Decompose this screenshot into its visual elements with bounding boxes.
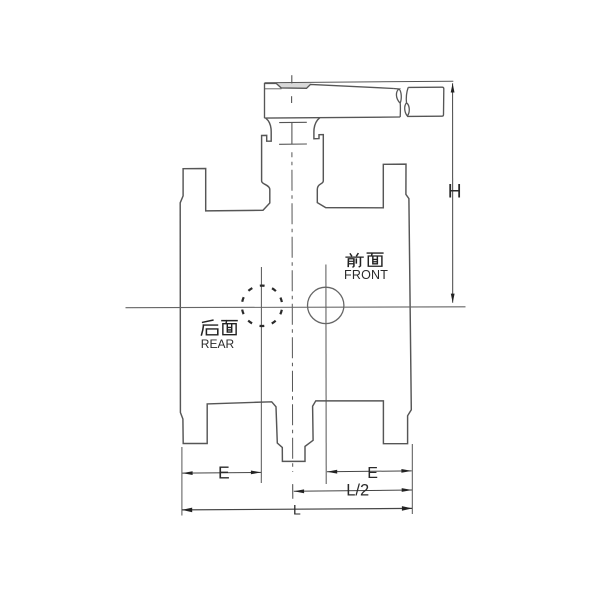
svg-text:L: L — [293, 502, 301, 518]
svg-text:E: E — [218, 462, 230, 482]
svg-text:E: E — [367, 465, 378, 482]
svg-text:REAR: REAR — [201, 337, 235, 351]
svg-text:H: H — [448, 181, 462, 202]
svg-text:FRONT: FRONT — [344, 268, 388, 282]
svg-text:L/2: L/2 — [346, 481, 369, 499]
